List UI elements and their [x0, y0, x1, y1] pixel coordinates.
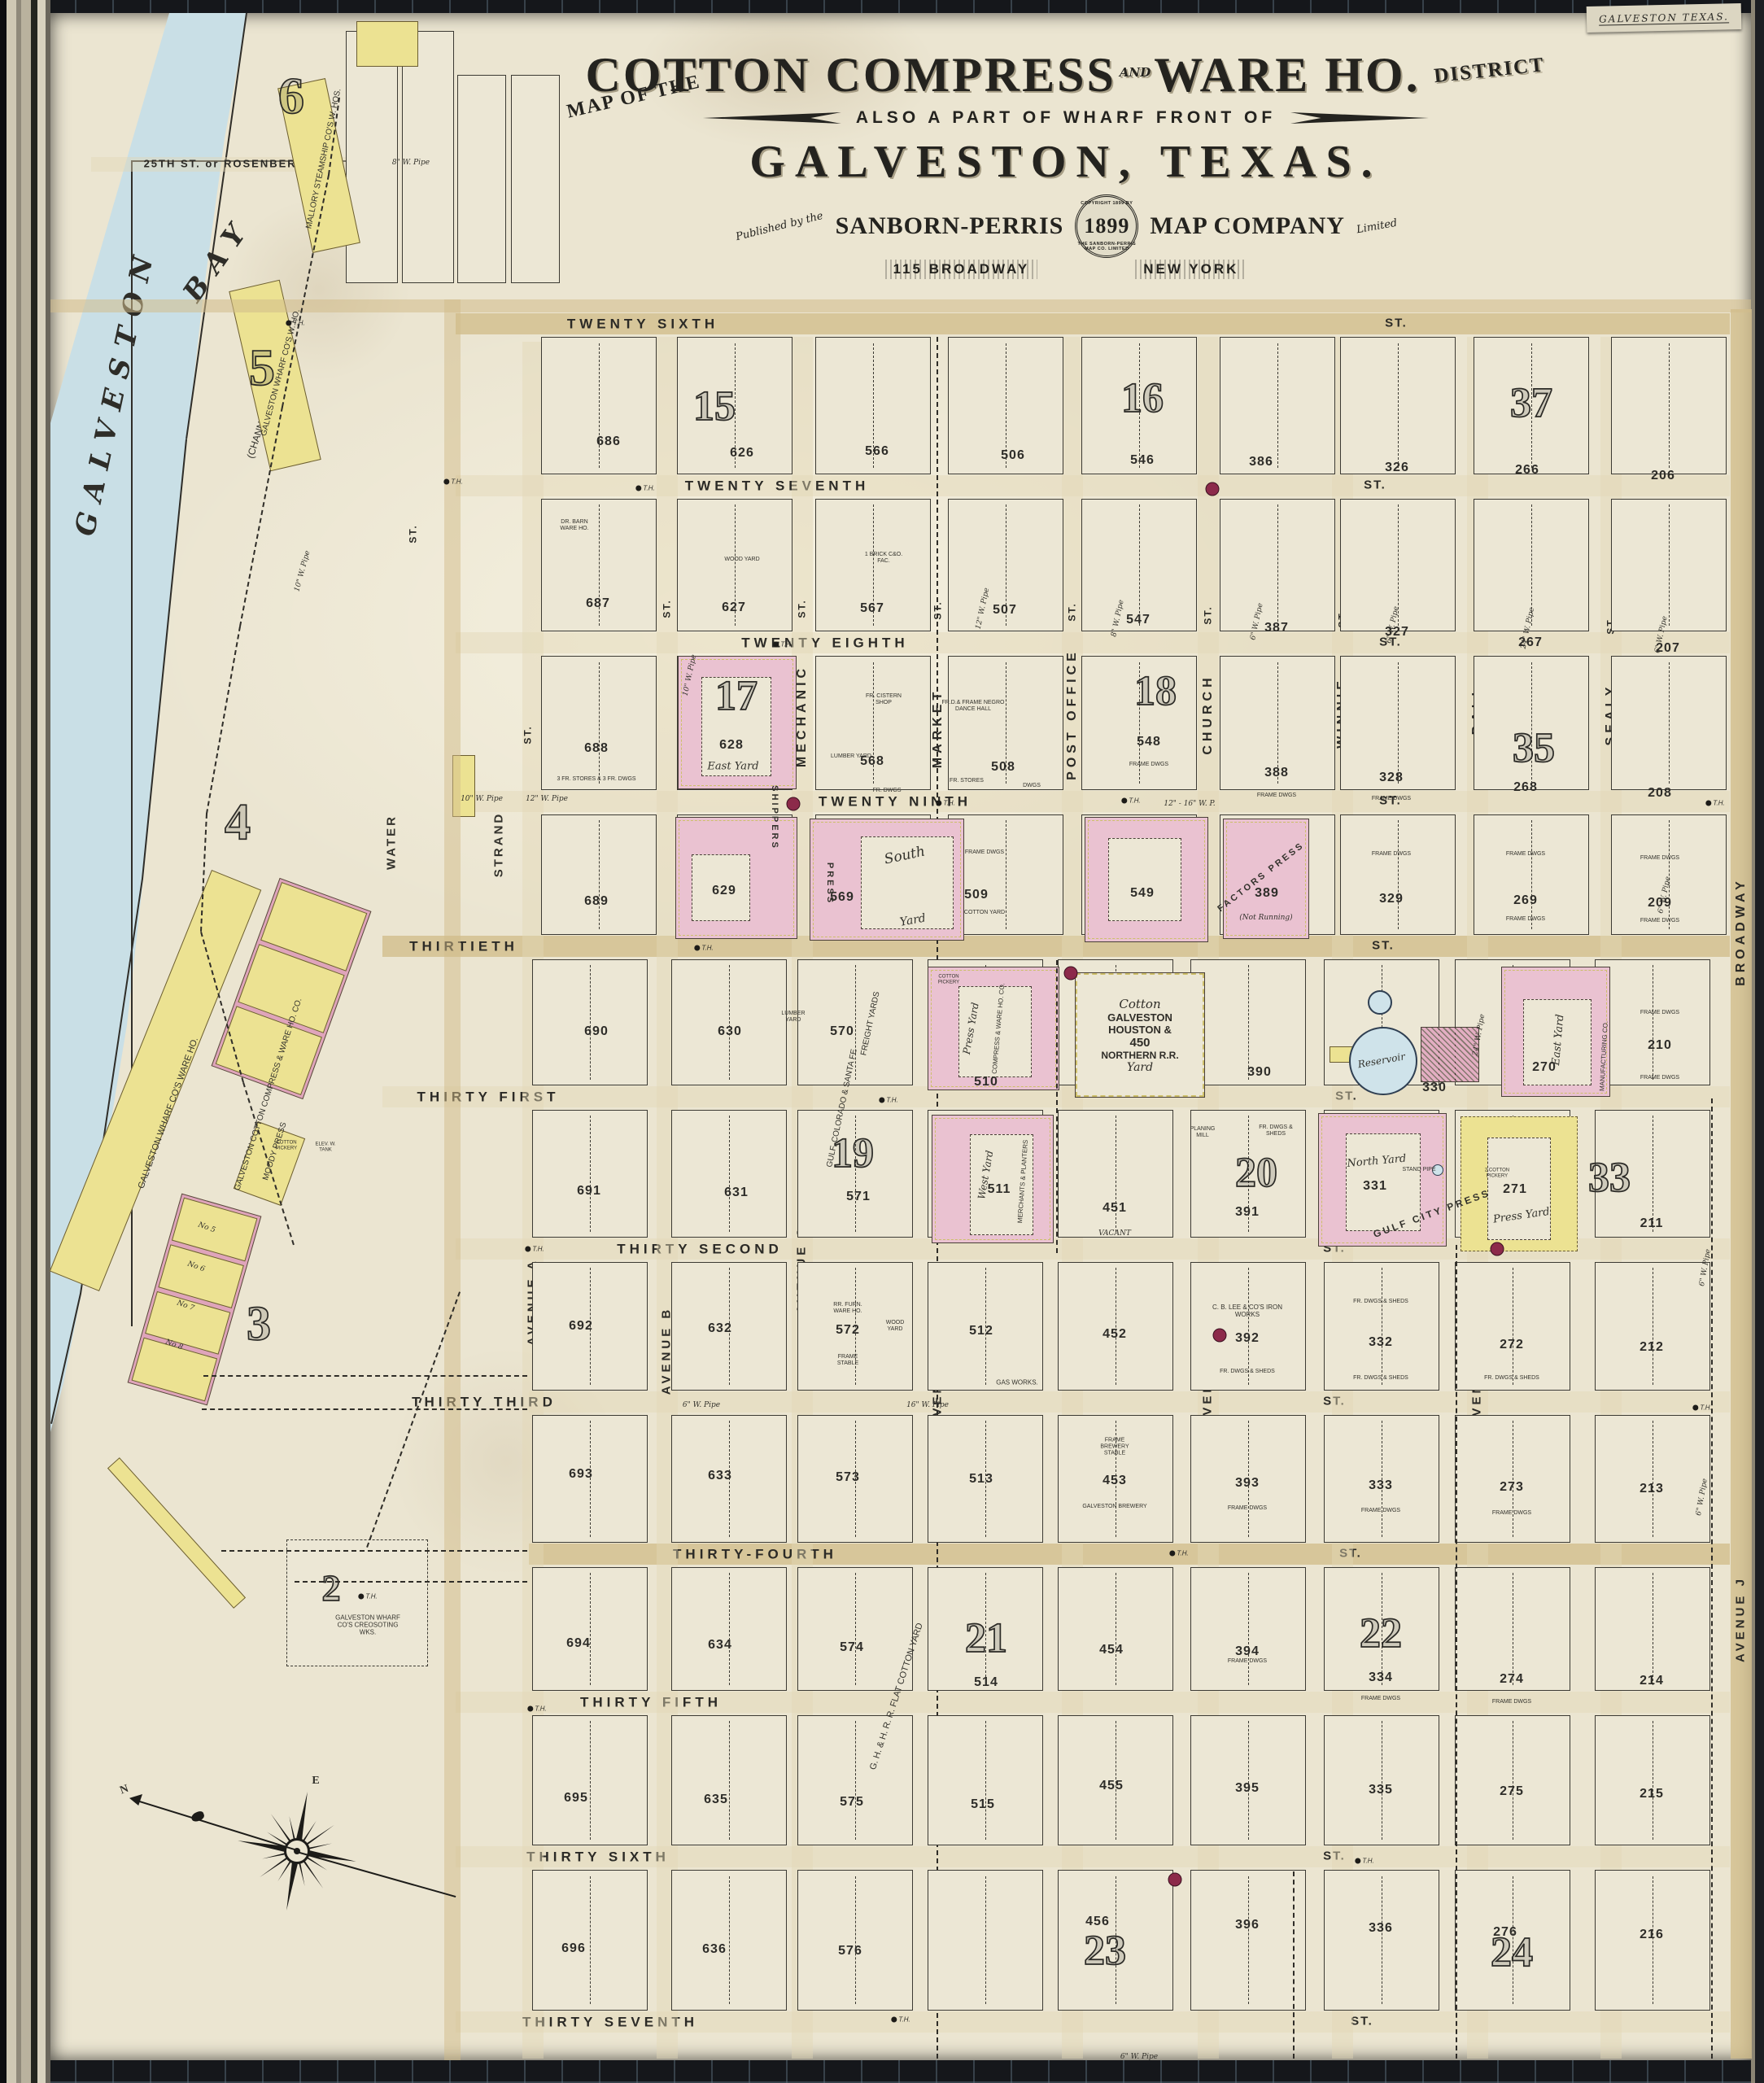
map-annotation: 16" W. Pipe	[906, 1401, 949, 1409]
city-block	[532, 1870, 648, 2011]
lot-divider	[1653, 1421, 1653, 1537]
ghn-yard-text: Cotton	[1119, 997, 1160, 1011]
city-block	[1081, 499, 1197, 631]
hydrant-dot	[1491, 1242, 1504, 1256]
block-number: 273	[1500, 1480, 1524, 1495]
city-block	[1455, 1715, 1570, 1845]
copyright-seal: COPYRIGHT 1899 BY 1899 THE SANBORN-PERRI…	[1075, 194, 1138, 258]
th-text: T.H.	[1700, 1404, 1711, 1412]
map-annotation: 6" W. Pipe	[683, 1401, 720, 1409]
lot-divider	[590, 1573, 591, 1685]
block-number: 328	[1379, 771, 1404, 785]
hydrant-dot	[787, 797, 801, 811]
lot-divider	[1248, 965, 1249, 1080]
title-district: DISTRICT	[1433, 54, 1546, 88]
publisher-address: 115 BROADWAY	[885, 260, 1038, 279]
map-annotation: East Yard	[707, 762, 758, 774]
street-st-marker: ST.	[1067, 602, 1077, 621]
map-annotation: FRAME DWGS	[1257, 793, 1296, 799]
lot-divider	[1653, 1573, 1653, 1685]
city-block	[797, 1715, 913, 1845]
wharf-structure	[356, 21, 418, 67]
street-name: THIRTY SIXTH	[526, 1849, 670, 1864]
published-by: Published by the	[734, 209, 823, 242]
block-number: 208	[1648, 786, 1672, 801]
street-st-label: ST.	[1385, 317, 1408, 331]
block-number: 455	[1099, 1779, 1124, 1793]
block-number: 512	[969, 1324, 993, 1338]
map-annotation: WOOD YARD	[879, 1320, 911, 1333]
map-annotation: C. B. LEE & CO'S IRON WORKS	[1203, 1304, 1292, 1319]
city-block	[1340, 814, 1456, 935]
hydrant-dot	[1064, 967, 1078, 980]
block-number: 513	[969, 1472, 993, 1487]
block-number: 695	[564, 1791, 588, 1806]
dashed-boundary	[203, 1375, 527, 1377]
sheet-number: 37	[1510, 380, 1552, 427]
dashed-boundary	[1711, 1098, 1713, 2059]
lot-divider	[729, 1876, 730, 2004]
block-number: 568	[860, 754, 884, 769]
sheet-number: 5	[249, 338, 275, 397]
map-annotation: 1 BRICK C&O. FAC.	[862, 552, 906, 565]
block-number: 333	[1369, 1478, 1393, 1493]
city-block	[797, 1567, 913, 1691]
ghn-yard-text: 450	[1129, 1036, 1150, 1050]
lot-divider	[590, 1721, 591, 1839]
publisher-row: Published by the SANBORN-PERRIS COPYRIGH…	[521, 194, 1611, 258]
lot-divider	[1116, 1268, 1116, 1385]
sheet-number: 15	[693, 383, 736, 430]
block-number: 452	[1102, 1327, 1127, 1342]
block-number: 696	[561, 1941, 586, 1956]
map-annotation: FRAME DWGS	[1640, 855, 1679, 862]
block-number: 396	[1235, 1918, 1260, 1932]
th-text: T.H.	[643, 485, 654, 492]
city-block	[541, 814, 657, 935]
ghn-rr-yard: CottonGALVESTONHOUSTON &450NORTHERN R.R.…	[1076, 973, 1204, 1097]
th-marker: T.H.	[773, 641, 792, 648]
dashed-boundary	[221, 1550, 527, 1552]
lot-divider	[1116, 1573, 1116, 1685]
block-number: 573	[836, 1470, 860, 1485]
city-block	[1190, 1567, 1306, 1691]
corner-note-text: GALVESTON TEXAS.	[1599, 11, 1729, 25]
map-annotation: VACANT	[1098, 1229, 1131, 1238]
block-number: 274	[1500, 1672, 1524, 1687]
block-number: 575	[840, 1795, 864, 1810]
city-block	[1340, 337, 1456, 474]
lot-divider	[1006, 820, 1006, 929]
block-number: 546	[1130, 453, 1155, 468]
sheet-number: 33	[1588, 1155, 1631, 1202]
block-number: 392	[1235, 1331, 1260, 1346]
street-name: THIRTY FIFTH	[580, 1694, 722, 1710]
block-number: 270	[1532, 1060, 1557, 1075]
creosoting-works-block	[286, 1539, 428, 1666]
block-number: 451	[1102, 1201, 1127, 1216]
block-number: 213	[1640, 1482, 1664, 1496]
th-text: T.H.	[1362, 1858, 1373, 1865]
lot-divider	[1653, 1268, 1653, 1385]
map-annotation: FRAME DWGS	[1640, 1010, 1679, 1016]
map-annotation: FRAME DWGS	[1372, 851, 1411, 858]
city-block	[457, 75, 506, 283]
block-number: 214	[1640, 1674, 1664, 1688]
lot-divider	[729, 1116, 730, 1232]
lot-divider	[1398, 662, 1399, 784]
lot-divider	[855, 1876, 856, 2004]
publisher-address-row: 115 BROADWAY NEW YORK	[521, 260, 1611, 279]
block-number: 211	[1640, 1216, 1664, 1231]
lot-divider	[1669, 343, 1670, 469]
sheet-number: 19	[832, 1130, 874, 1177]
map-annotation: FRAME DWGS	[1640, 918, 1679, 924]
block-number: 266	[1515, 463, 1539, 478]
sheet-number: 16	[1121, 375, 1164, 422]
sheet-number: 24	[1491, 1929, 1533, 1976]
lot-divider	[1139, 504, 1140, 625]
block-number: 687	[586, 596, 610, 611]
block-number: 332	[1369, 1335, 1393, 1350]
th-text: T.H.	[1177, 1550, 1188, 1557]
sheet-number: 20	[1235, 1150, 1277, 1197]
map-annotation: COTTON PICKERY	[271, 1140, 302, 1151]
th-marker: T.H.	[635, 485, 654, 492]
map-annotation: FR. DWGS & SHEDS	[1353, 1375, 1408, 1382]
ghn-yard-text: HOUSTON &	[1108, 1024, 1172, 1036]
block-number: 331	[1363, 1179, 1387, 1194]
lot-divider	[1248, 1268, 1249, 1385]
corner-note: GALVESTON TEXAS.	[1587, 3, 1742, 33]
street-st-marker: ST.	[797, 599, 807, 618]
block-number: 330	[1422, 1081, 1447, 1095]
map-annotation: DWGS	[1023, 783, 1041, 789]
city-block	[671, 1567, 787, 1691]
block-number: 209	[1648, 896, 1672, 910]
th-marker: T.H.	[1121, 797, 1140, 805]
th-text: T.H.	[293, 320, 304, 327]
title-block: MAP OF THE COTTON COMPRESSANDWARE HO. DI…	[521, 47, 1611, 279]
street-band-vertical	[1731, 309, 1752, 2059]
map-annotation: 8" W. Pipe	[392, 159, 430, 167]
th-marker: T.H.	[1692, 1404, 1711, 1412]
lot-divider	[590, 1876, 591, 2004]
lot-divider	[1513, 1573, 1513, 1685]
street-name: TWENTY SIXTH	[567, 316, 718, 331]
map-annotation: WATER	[386, 814, 400, 870]
map-annotation: STAND PIPE	[1402, 1167, 1435, 1173]
map-annotation: FRAME STABLE	[830, 1354, 867, 1367]
lot-divider	[1248, 1721, 1249, 1839]
city-block	[948, 814, 1063, 935]
th-text: T.H.	[780, 641, 792, 648]
map-annotation: DR. BARN WARE HO.	[552, 519, 597, 532]
warehouse-row	[128, 1194, 262, 1406]
block-number: 386	[1249, 455, 1273, 469]
map-annotation: FRAME DWGS	[1228, 1658, 1267, 1665]
map-annotation: COTTON YARD	[964, 910, 1005, 916]
th-marker: T.H.	[358, 1593, 377, 1600]
lot-divider	[1513, 1421, 1513, 1537]
th-marker: T.H.	[1705, 800, 1724, 807]
title-main-right: WARE HO.	[1154, 48, 1420, 102]
th-dot-icon	[879, 1098, 884, 1103]
block-number: 387	[1264, 621, 1289, 635]
th-dot-icon	[527, 1706, 533, 1712]
map-canvas: BAYGALVESTON(CHANNEL)25TH ST. or ROSENBE…	[0, 0, 1764, 2083]
lot-divider	[1248, 1573, 1249, 1685]
hydrant-dot	[1213, 1329, 1227, 1343]
lot-divider	[1653, 1721, 1653, 1839]
block-number: 514	[974, 1675, 998, 1690]
lot-divider	[1277, 504, 1278, 625]
th-dot-icon	[635, 486, 641, 491]
block-number: 390	[1247, 1065, 1272, 1080]
hydrant-dot	[1168, 1873, 1182, 1887]
th-text: T.H.	[532, 1246, 544, 1253]
block-number: 627	[722, 600, 746, 615]
map-annotation: STRAND	[493, 812, 507, 878]
street-name-vertical: MECHANIC	[795, 665, 810, 767]
city-block	[541, 656, 657, 790]
th-text: T.H.	[451, 478, 462, 486]
th-dot-icon	[1355, 1858, 1360, 1864]
block-number: 689	[584, 894, 609, 909]
th-text: T.H.	[1129, 797, 1140, 805]
street-st-marker: ST.	[932, 600, 943, 619]
block-number: 636	[702, 1942, 727, 1957]
city-block	[671, 1715, 787, 1845]
block-number: 272	[1500, 1338, 1524, 1352]
map-annotation: FR. DWGS	[873, 788, 902, 794]
block-number: 389	[1255, 886, 1279, 901]
block-number: 275	[1500, 1784, 1524, 1799]
ornament-pennant-left-icon	[703, 112, 841, 124]
city-block	[1595, 1567, 1710, 1691]
map-annotation: PLANING MILL	[1185, 1126, 1221, 1139]
sheet-number: 3	[247, 1296, 271, 1351]
block-number: 549	[1130, 886, 1155, 901]
sheet-number: 35	[1513, 725, 1555, 772]
city-block	[671, 959, 787, 1085]
dashed-boundary	[202, 1408, 527, 1410]
lot-divider	[729, 1721, 730, 1839]
paper-seam-horizontal	[50, 299, 1751, 312]
sheet-number: 21	[965, 1615, 1007, 1662]
pump-house	[1421, 1027, 1479, 1082]
block-number: 572	[836, 1323, 860, 1338]
th-marker: T.H.	[525, 1246, 544, 1253]
block-number: 206	[1651, 469, 1675, 483]
block-number: 629	[712, 884, 736, 898]
compass-e-label: E	[312, 1775, 319, 1788]
street-name-vertical: CHURCH	[1201, 674, 1216, 754]
lot-divider	[599, 343, 600, 469]
block-number: 630	[718, 1024, 742, 1039]
title-amp: AND	[1116, 65, 1154, 80]
lot-divider	[1248, 1876, 1249, 2004]
block-number: 329	[1379, 892, 1404, 906]
street-st-marker: ST.	[522, 725, 533, 744]
street-st-marker: ST.	[661, 599, 672, 618]
block-number: 574	[840, 1640, 864, 1655]
city-block	[1595, 1262, 1710, 1391]
block-number: 548	[1137, 735, 1161, 749]
map-annotation: FRAME DWGS	[1372, 796, 1411, 802]
sheet-number: 22	[1360, 1610, 1402, 1657]
block-number: 394	[1235, 1644, 1260, 1659]
publisher-limited: Limited	[1356, 216, 1398, 236]
lot-divider	[599, 820, 600, 929]
block-number: 571	[846, 1190, 871, 1204]
city-block	[671, 1110, 787, 1238]
publisher-name-2: MAP COMPANY	[1150, 212, 1345, 240]
street-name: THIRTY SECOND	[617, 1241, 783, 1256]
sheet-number: 2	[322, 1567, 341, 1609]
lot-divider	[599, 662, 600, 784]
block-number: 547	[1126, 613, 1151, 627]
lot-divider	[1398, 343, 1399, 469]
map-annotation: FRAME BREWERY STABLE	[1090, 1437, 1139, 1456]
street-name: THIRTIETH	[409, 938, 518, 954]
publisher-city: NEW YORK	[1135, 260, 1247, 279]
city-block	[1455, 1262, 1570, 1391]
lot-divider	[1669, 820, 1670, 929]
th-dot-icon	[358, 1594, 364, 1600]
street-name: TWENTY SEVENTH	[685, 478, 869, 493]
lot-divider	[1382, 1876, 1382, 2004]
th-dot-icon	[525, 1247, 531, 1252]
lot-divider	[1382, 1268, 1382, 1385]
map-annotation: FR. DWGS & SHEDS	[1251, 1124, 1300, 1138]
city-block	[1058, 1110, 1173, 1238]
city-block	[1595, 959, 1710, 1085]
compass-n-label: N	[118, 1783, 130, 1797]
map-annotation: RR. FURN. WARE HO.	[826, 1302, 871, 1315]
th-text: T.H.	[365, 1593, 377, 1600]
map-annotation: GALVESTON WHARF CO'S CREOSOTING WKS.	[330, 1615, 407, 1637]
dashed-boundary	[206, 627, 241, 814]
map-annotation: FR.D.& FRAME NEGRO DANCE HALL	[939, 700, 1008, 713]
block-number: 576	[838, 1944, 862, 1959]
lot-divider	[1653, 965, 1653, 1080]
block-number: 271	[1503, 1182, 1527, 1197]
lot-divider	[729, 965, 730, 1080]
map-annotation: 3 FR. STORES & 3 FR. DWGS	[557, 776, 635, 783]
city-block	[797, 1870, 913, 2011]
th-dot-icon	[694, 945, 700, 951]
th-dot-icon	[936, 801, 941, 806]
block-number: 395	[1235, 1781, 1260, 1796]
street-name: TWENTY EIGHTH	[741, 635, 908, 650]
map-annotation: 6" W. Pipe	[1120, 2053, 1158, 2061]
th-dot-icon	[891, 2017, 897, 2023]
title-subtitle: ALSO A PART OF WHARF FRONT OF	[856, 108, 1276, 128]
block-number: 388	[1264, 766, 1289, 780]
block-number: 515	[971, 1797, 995, 1812]
block-number: 212	[1640, 1340, 1664, 1355]
th-marker: T.H.	[891, 2016, 910, 2024]
city-block	[1611, 814, 1727, 935]
block-number: 507	[993, 603, 1017, 618]
block-number: 692	[569, 1319, 593, 1334]
block-number: 506	[1001, 448, 1025, 463]
scanned-map-page: BAYGALVESTON(CHANNEL)25TH ST. or ROSENBE…	[0, 0, 1764, 2083]
city-block	[532, 1715, 648, 1845]
map-annotation: FRAME DWGS	[965, 849, 1004, 856]
block-number: 510	[974, 1075, 998, 1090]
city-block	[1611, 656, 1727, 790]
block-number: 210	[1648, 1038, 1672, 1053]
map-annotation: FRAME DWGS	[1129, 762, 1168, 768]
lot-divider	[855, 1573, 856, 1685]
lot-divider	[1669, 504, 1670, 625]
block-number: 508	[991, 760, 1015, 775]
ornament-pennant-right-icon	[1290, 112, 1429, 124]
block-number: 566	[865, 444, 889, 459]
title-city: GALVESTON, TEXAS.	[521, 136, 1611, 188]
th-text: T.H.	[943, 800, 954, 807]
th-text: T.H.	[535, 1705, 546, 1713]
city-block	[1190, 1715, 1306, 1845]
map-annotation: SHIPPERS	[770, 785, 779, 850]
lot-divider	[1669, 662, 1670, 784]
city-block	[1324, 1715, 1439, 1845]
block-number: 633	[708, 1469, 732, 1483]
map-annotation: (Not Running)	[1239, 914, 1292, 922]
compass-arrowhead-icon	[129, 1794, 142, 1806]
block-number: 511	[988, 1182, 1011, 1197]
th-dot-icon	[1705, 801, 1711, 806]
map-annotation: FRAME DWGS	[1506, 916, 1545, 923]
map-annotation: FR. CISTERN SHOP	[862, 693, 906, 706]
block-number: 326	[1385, 461, 1409, 475]
map-annotation: FRAME DWGS	[1361, 1508, 1400, 1514]
street-st-marker: ST.	[1203, 605, 1213, 624]
map-annotation: WOOD YARD	[724, 557, 759, 563]
paper-seam-vertical	[444, 299, 461, 2060]
th-dot-icon	[773, 642, 779, 648]
block-number: 688	[584, 741, 609, 756]
block-number: 334	[1369, 1670, 1393, 1685]
map-annotation: COTTON PICKERY	[932, 974, 965, 985]
block-number: 693	[569, 1467, 593, 1482]
city-block	[671, 1870, 787, 2011]
th-marker: T.H.	[527, 1705, 546, 1713]
block-number: 686	[596, 435, 621, 449]
th-dot-icon	[1169, 1551, 1175, 1557]
map-annotation: 12" - 16" W. P.	[1164, 800, 1215, 808]
city-block	[1324, 1870, 1439, 2011]
city-block	[928, 1715, 1043, 1845]
dashed-boundary	[1056, 960, 1058, 1253]
street-st-marker: ST.	[408, 524, 418, 543]
block-number: 335	[1369, 1783, 1393, 1797]
city-block	[541, 337, 657, 474]
lot-divider	[1531, 820, 1532, 929]
avenue-name-vertical: AVENUE J	[1735, 1576, 1749, 1662]
water-tank-circle	[1368, 990, 1392, 1015]
th-marker: T.H.	[694, 945, 713, 952]
map-annotation: FRAME DWGS	[1506, 851, 1545, 858]
street-name-vertical: POST OFFICE	[1065, 648, 1080, 780]
th-marker: T.H.	[1355, 1858, 1373, 1865]
seal-bottom-text: THE SANBORN-PERRIS MAP CO. LIMITED	[1077, 242, 1136, 251]
block-number: 570	[830, 1024, 854, 1039]
lot-divider	[1277, 343, 1278, 469]
block-number: 327	[1385, 625, 1409, 640]
